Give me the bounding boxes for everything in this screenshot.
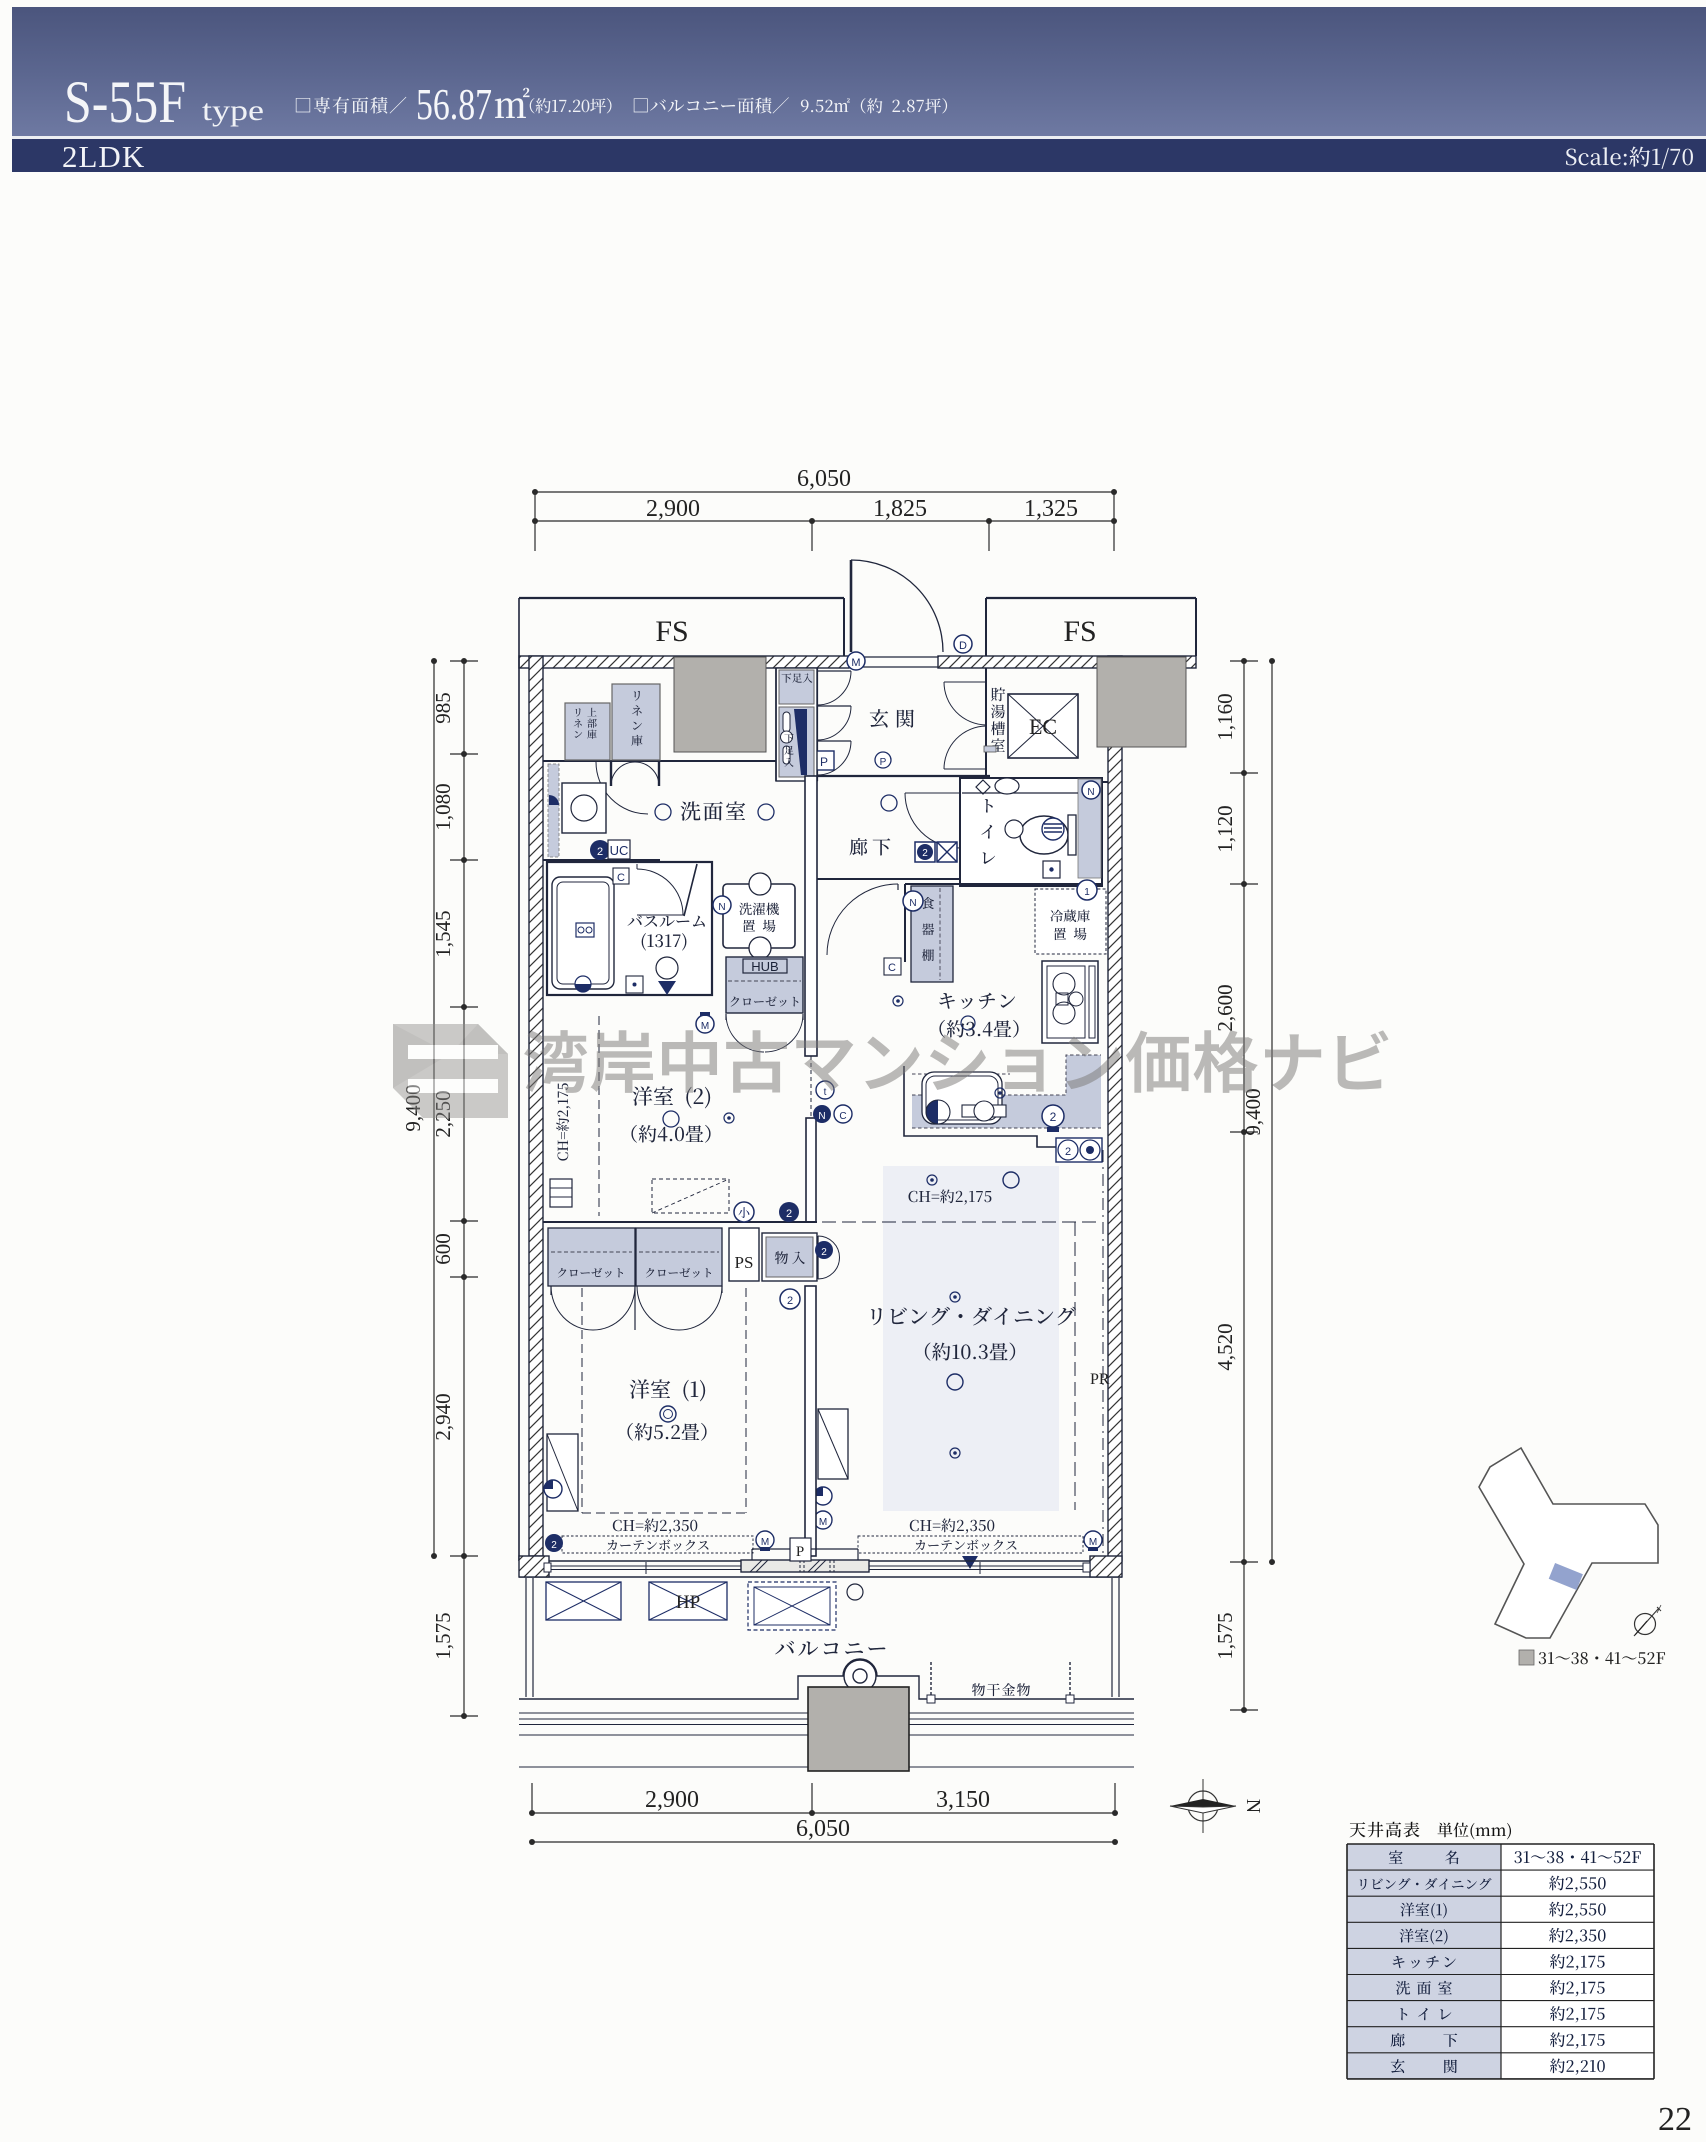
svg-text:2,600: 2,600 <box>1213 984 1237 1031</box>
svg-text:FS: FS <box>1063 615 1096 648</box>
svg-text:6,050: 6,050 <box>796 1816 850 1842</box>
svg-text:M: M <box>1089 1537 1097 1548</box>
svg-text:HP: HP <box>676 1592 700 1613</box>
svg-text:N: N <box>909 898 916 909</box>
svg-text:PS: PS <box>735 1253 754 1272</box>
svg-text:P: P <box>796 1544 804 1560</box>
svg-text:2: 2 <box>787 1295 793 1307</box>
svg-text:D: D <box>959 640 967 652</box>
svg-text:2: 2 <box>786 1208 792 1220</box>
svg-text:C: C <box>839 1111 846 1122</box>
svg-text:C: C <box>888 962 896 974</box>
svg-text:1,160: 1,160 <box>1213 693 1237 740</box>
svg-text:2: 2 <box>551 1540 557 1551</box>
svg-text:6,050: 6,050 <box>797 466 851 492</box>
svg-text:22: 22 <box>1658 2101 1692 2138</box>
svg-text:56.87: 56.87 <box>416 80 492 129</box>
svg-text:UC: UC <box>610 843 629 858</box>
svg-text:2,900: 2,900 <box>645 1787 699 1813</box>
svg-text:2: 2 <box>922 848 928 859</box>
svg-text:2: 2 <box>1065 1146 1071 1158</box>
svg-text:1: 1 <box>1084 887 1090 898</box>
svg-text:M: M <box>761 1537 769 1548</box>
svg-text:3,150: 3,150 <box>936 1787 990 1813</box>
svg-text:1,325: 1,325 <box>1024 496 1078 522</box>
svg-text:type: type <box>202 94 264 127</box>
svg-text:EC: EC <box>1029 714 1057 739</box>
svg-text:S-55F: S-55F <box>64 69 186 135</box>
svg-text:PR: PR <box>1090 1371 1110 1388</box>
svg-text:N: N <box>818 1111 825 1122</box>
svg-text:M: M <box>819 1517 827 1528</box>
svg-text:4,520: 4,520 <box>1213 1323 1237 1370</box>
svg-text:2: 2 <box>1050 1110 1057 1124</box>
svg-text:9,400: 9,400 <box>1241 1088 1265 1135</box>
svg-text:1,120: 1,120 <box>1213 805 1237 852</box>
svg-text:1,575: 1,575 <box>1213 1612 1237 1659</box>
svg-text:HUB: HUB <box>751 959 778 974</box>
svg-text:M: M <box>851 657 860 669</box>
svg-text:t: t <box>824 1087 827 1098</box>
svg-text:N: N <box>1087 787 1094 798</box>
svg-text:2,900: 2,900 <box>646 496 700 522</box>
svg-text:2: 2 <box>597 846 603 858</box>
svg-text:C: C <box>617 872 625 884</box>
svg-text:FS: FS <box>655 615 688 648</box>
svg-text:1,825: 1,825 <box>873 496 927 522</box>
svg-text:N: N <box>718 902 725 913</box>
svg-text:M: M <box>701 1021 709 1032</box>
svg-text:N: N <box>1242 1799 1264 1813</box>
svg-text:P: P <box>880 757 887 768</box>
svg-text:P: P <box>820 755 828 769</box>
svg-text:1,575: 1,575 <box>431 1612 455 1659</box>
svg-text:2: 2 <box>821 1247 827 1258</box>
svg-text:2LDK: 2LDK <box>62 139 145 174</box>
